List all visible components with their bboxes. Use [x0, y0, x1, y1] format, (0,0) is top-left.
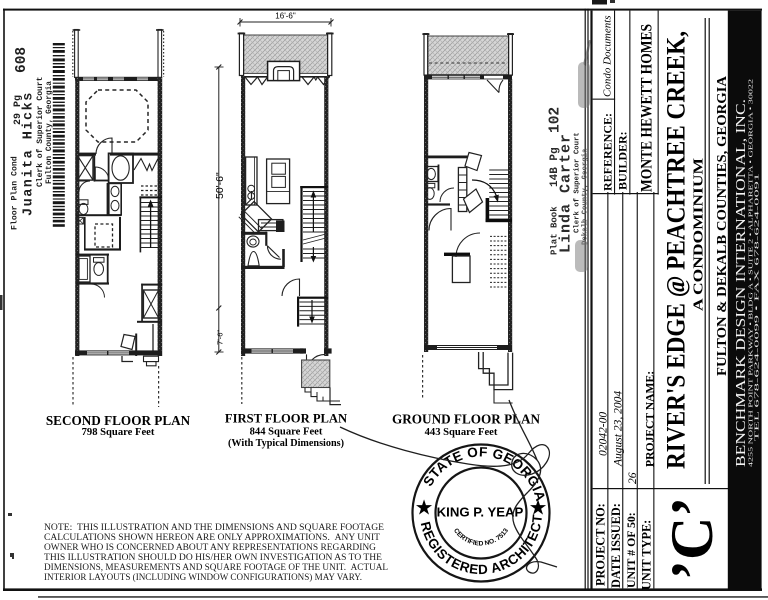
svg-text:443 Square Feet: 443 Square Feet	[425, 427, 498, 438]
svg-text:FIRST FLOOR PLAN: FIRST FLOOR PLAN	[225, 412, 347, 426]
svg-text:REFERENCE:: REFERENCE:	[601, 113, 615, 191]
svg-text:Clerk of Superior Court: Clerk of Superior Court	[574, 132, 582, 233]
svg-text:A CONDOMINIUM: A CONDOMINIUM	[691, 158, 706, 311]
svg-text:102: 102	[548, 107, 564, 133]
svg-text:SECOND FLOOR PLAN: SECOND FLOOR PLAN	[46, 413, 191, 428]
svg-text:Juanita Hicks: Juanita Hicks	[22, 91, 37, 216]
svg-text:16'-6": 16'-6"	[275, 12, 296, 21]
svg-text:PROJECT NO:: PROJECT NO:	[594, 503, 608, 586]
svg-text:BENCHMARK DESIGN INTERNATIONAL: BENCHMARK DESIGN INTERNATIONAL, INC.	[733, 99, 748, 467]
svg-text:PROJECT NAME:: PROJECT NAME:	[643, 371, 656, 467]
svg-text:BUILDER:: BUILDER:	[616, 131, 630, 190]
svg-text:Condo Documents: Condo Documents	[602, 15, 614, 97]
svg-text:Linda Carter: Linda Carter	[558, 133, 575, 253]
svg-text:26: 26	[627, 472, 639, 484]
svg-text:Dekalb County, Georgia: Dekalb County, Georgia	[582, 148, 590, 245]
svg-text:GROUND FLOOR PLAN: GROUND FLOOR PLAN	[392, 412, 540, 427]
svg-text:KING P. YEAP: KING P. YEAP	[437, 505, 524, 520]
svg-text:★: ★	[529, 497, 548, 520]
svg-text:798 Square Feet: 798 Square Feet	[82, 427, 155, 438]
svg-text:MONTE HEWETT HOMES: MONTE HEWETT HOMES	[639, 24, 656, 192]
svg-text:UNIT TYPE:: UNIT TYPE:	[640, 520, 654, 590]
svg-text:50'-6": 50'-6"	[214, 172, 226, 199]
svg-text:Floor Plan Cond: Floor Plan Cond	[10, 156, 20, 230]
svg-text:(With Typical Dimensions): (With Typical Dimensions)	[228, 438, 344, 449]
svg-text:RIVER'S EDGE @ PEACHTREE CREEK: RIVER'S EDGE @ PEACHTREE CREEK,	[661, 31, 691, 469]
svg-text:DATE ISSUED:: DATE ISSUED:	[609, 503, 623, 588]
svg-text:’C’: ’C’	[659, 497, 725, 580]
svg-text:844 Square Feet: 844 Square Feet	[250, 427, 323, 438]
svg-text:August 23, 2004: August 23, 2004	[613, 391, 625, 467]
svg-text:Clerk of Superior Court: Clerk of Superior Court	[36, 76, 45, 187]
svg-text:7'-6": 7'-6"	[216, 330, 225, 345]
svg-text:UNIT # OF 50:: UNIT # OF 50:	[624, 512, 638, 588]
svg-text:INTERIOR LAYOUTS (INCLUDING WI: INTERIOR LAYOUTS (INCLUDING WINDOW CONFI…	[44, 572, 362, 583]
svg-text:★: ★	[415, 497, 434, 520]
svg-text:608: 608	[14, 47, 30, 73]
svg-text:TEL 678-624-0099 • FAX 678-624: TEL 678-624-0099 • FAX 678-624-0091	[754, 173, 761, 441]
svg-text:02042-00: 02042-00	[598, 412, 610, 456]
svg-text:FULTON & DEKALB COUNTIES, GEOR: FULTON & DEKALB COUNTIES, GEORGIA	[714, 76, 729, 376]
